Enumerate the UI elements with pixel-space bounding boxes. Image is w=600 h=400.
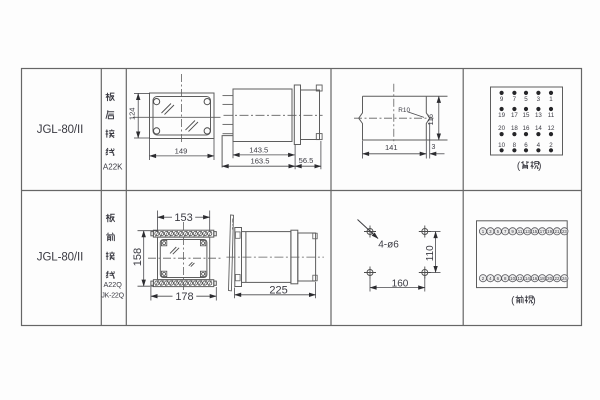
- svg-text:13: 13: [535, 112, 542, 119]
- svg-text:22: 22: [555, 276, 560, 281]
- svg-text:4-ø6: 4-ø6: [378, 240, 399, 251]
- svg-text:116: 116: [426, 114, 435, 125]
- svg-text:R10: R10: [398, 107, 410, 114]
- svg-text:124: 124: [127, 107, 136, 120]
- svg-text:141: 141: [385, 143, 398, 152]
- svg-text:153: 153: [174, 212, 192, 224]
- svg-text:10: 10: [510, 276, 515, 281]
- svg-text:JK-22Q: JK-22Q: [101, 292, 124, 299]
- svg-text:143.5: 143.5: [249, 145, 268, 154]
- svg-text:14: 14: [525, 276, 530, 281]
- svg-text:158: 158: [132, 248, 144, 266]
- svg-text:20: 20: [547, 276, 552, 281]
- svg-text:23: 23: [562, 229, 567, 234]
- svg-text:A22Q: A22Q: [104, 280, 123, 289]
- svg-text:10: 10: [498, 142, 505, 149]
- svg-text:A22K: A22K: [103, 163, 123, 172]
- svg-text:9: 9: [500, 96, 504, 103]
- svg-text:12: 12: [548, 125, 555, 132]
- svg-text:15: 15: [532, 229, 537, 234]
- svg-text:17: 17: [540, 229, 545, 234]
- svg-text:19: 19: [547, 229, 552, 234]
- svg-text:2: 2: [549, 142, 553, 149]
- svg-text:5: 5: [524, 96, 528, 103]
- svg-text:JGL-80/II: JGL-80/II: [37, 252, 83, 264]
- svg-text:7: 7: [513, 96, 517, 103]
- svg-text:16: 16: [532, 276, 537, 281]
- svg-text:1: 1: [549, 96, 553, 103]
- svg-text:20: 20: [498, 125, 505, 132]
- svg-text:149: 149: [175, 147, 188, 156]
- svg-text:15: 15: [523, 112, 530, 119]
- svg-text:18: 18: [511, 125, 518, 132]
- svg-text:56.5: 56.5: [299, 156, 314, 165]
- svg-text:16: 16: [523, 125, 530, 132]
- svg-text:18: 18: [540, 276, 545, 281]
- svg-text:13: 13: [525, 229, 530, 234]
- svg-text:225: 225: [269, 285, 287, 297]
- svg-text:17: 17: [511, 112, 518, 119]
- svg-text:110: 110: [425, 245, 436, 261]
- svg-text:JGL-80/II: JGL-80/II: [37, 124, 83, 136]
- svg-text:11: 11: [518, 229, 523, 234]
- svg-text:21: 21: [555, 229, 560, 234]
- svg-text:6: 6: [524, 142, 528, 149]
- svg-text:160: 160: [392, 279, 409, 290]
- svg-text:178: 178: [175, 291, 193, 303]
- svg-text:163.5: 163.5: [250, 156, 269, 165]
- svg-text:14: 14: [535, 125, 542, 132]
- svg-text:24: 24: [562, 276, 567, 281]
- svg-text:8: 8: [513, 142, 517, 149]
- svg-text:12: 12: [518, 276, 523, 281]
- svg-text:11: 11: [548, 112, 555, 119]
- svg-text:19: 19: [498, 112, 505, 119]
- svg-text:3: 3: [431, 144, 435, 151]
- svg-text:4: 4: [537, 142, 541, 149]
- svg-text:3: 3: [537, 96, 541, 103]
